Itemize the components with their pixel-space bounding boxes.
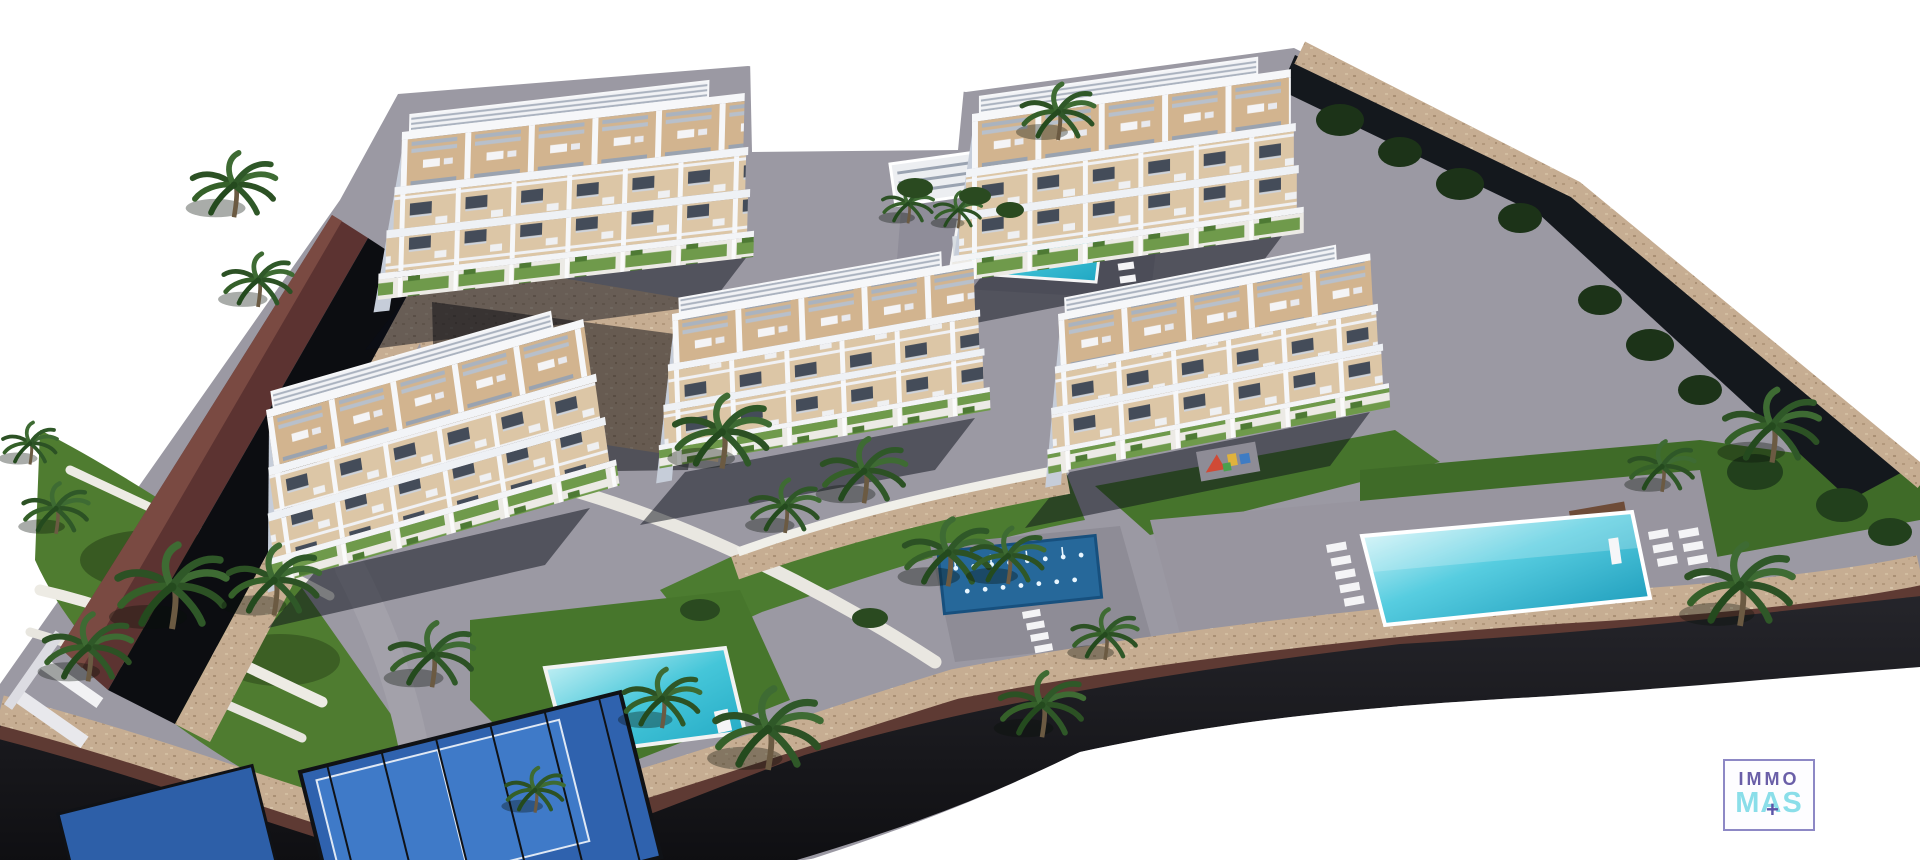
site-render: [0, 0, 1920, 860]
palm-tree: [186, 153, 276, 217]
render-image: IMMO MAS +: [0, 0, 1920, 860]
immomas-logo: IMMO MAS +: [1723, 759, 1815, 831]
logo-plus-icon: +: [1766, 799, 1779, 821]
logo-word-immo: IMMO: [1725, 770, 1813, 788]
background-gap: [750, 58, 964, 152]
logo-word-mas: MAS +: [1735, 789, 1802, 818]
